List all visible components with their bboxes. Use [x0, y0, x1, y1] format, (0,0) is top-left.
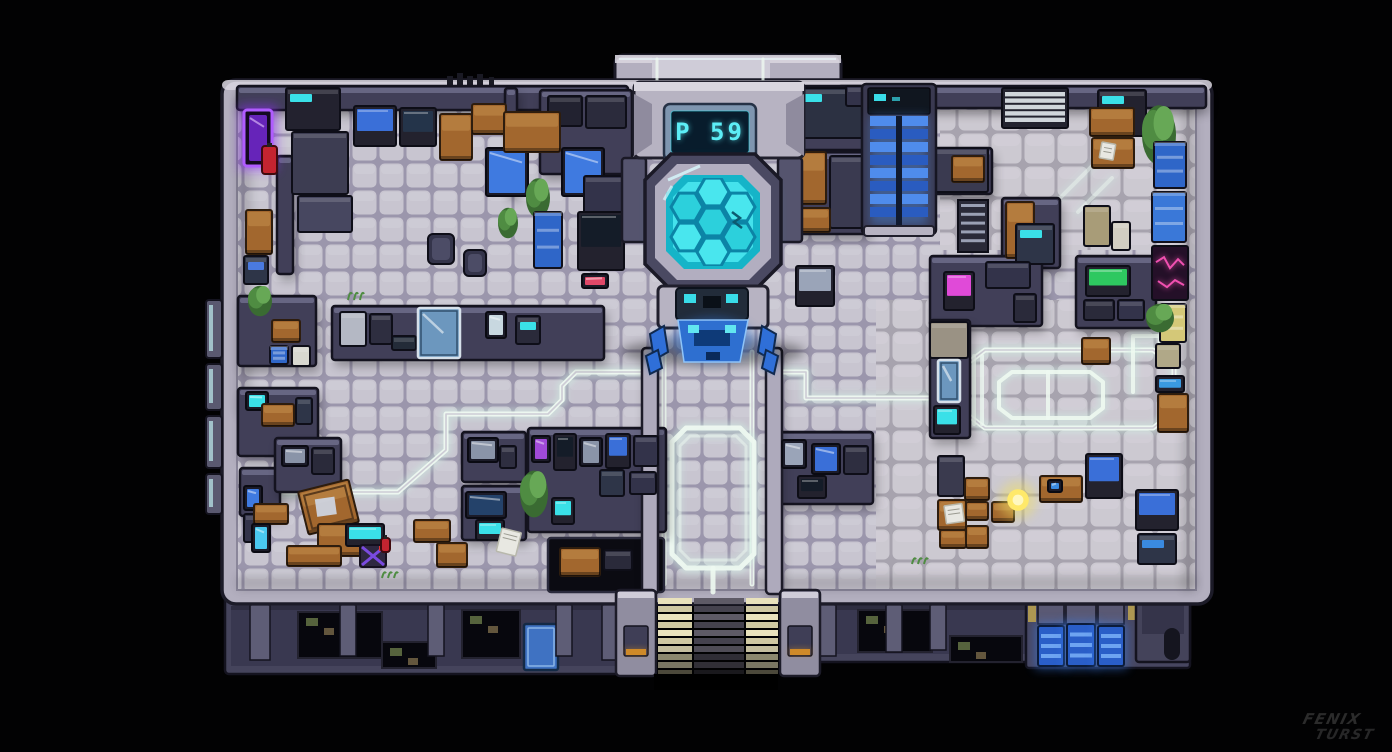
cabinet [1156, 344, 1180, 368]
cabinet [292, 132, 348, 194]
artist-signature: FENIX TURST [1297, 710, 1380, 743]
computer-terminal [1086, 454, 1122, 498]
display-screen [466, 492, 506, 518]
cabinet [938, 456, 964, 496]
computer-terminal [1136, 490, 1178, 530]
computer-terminal [606, 434, 630, 468]
wooden-desk [414, 520, 450, 542]
wooden-desk [287, 546, 341, 566]
storage-locker [534, 212, 562, 268]
wooden-desk [254, 504, 288, 524]
cabinet [600, 470, 624, 496]
cabinet [634, 436, 658, 466]
computer-terminal [552, 498, 574, 524]
chair [464, 250, 486, 276]
display-screen [486, 148, 528, 196]
glass-panel [938, 360, 960, 402]
cabinet [1118, 300, 1144, 320]
wooden-desk [560, 548, 600, 576]
potted-plant [248, 286, 272, 317]
wooden-desk [966, 526, 988, 548]
computer-terminal [346, 524, 384, 546]
computer-terminal [554, 434, 576, 470]
wooden-desk [1082, 338, 1110, 364]
wooden-cabinet [246, 210, 272, 254]
fire-extinguisher [381, 535, 390, 552]
computer-terminal [798, 476, 826, 498]
wooden-desk [952, 156, 984, 182]
cabinet [1084, 300, 1114, 320]
potted-plant [498, 208, 518, 239]
storage-locker [1154, 142, 1186, 188]
display-screen [282, 446, 308, 466]
cabinet [1014, 294, 1036, 322]
ladder [958, 200, 988, 252]
cabinet [370, 314, 392, 344]
paper-sheet [1099, 142, 1116, 160]
display-screen [582, 274, 608, 288]
cabinet [312, 448, 334, 474]
display-screen [1048, 480, 1062, 492]
wooden-desk [504, 112, 560, 152]
cabinet [1016, 224, 1054, 264]
display-screen [782, 440, 806, 468]
blue-staircase [862, 84, 936, 236]
wooden-desk [965, 478, 989, 500]
wooden-desk [1090, 108, 1134, 136]
room-wall-block [277, 156, 293, 274]
paper-sheet [944, 503, 964, 523]
storage-locker [1152, 192, 1186, 242]
storage-locker [270, 346, 288, 364]
computer-terminal [1156, 376, 1184, 392]
cabinet [500, 446, 516, 468]
display-screen [486, 312, 506, 338]
cabinet [1138, 534, 1176, 564]
wooden-cabinet [440, 114, 472, 160]
chair [428, 234, 454, 264]
wooden-desk [800, 208, 830, 232]
computer-terminal [796, 266, 834, 306]
cabinet [516, 316, 540, 344]
display-screen [532, 436, 550, 462]
signature-line-2: TURST [1313, 727, 1376, 743]
computer-terminal [400, 108, 436, 146]
wooden-desk [966, 502, 988, 520]
cabinet [844, 446, 868, 474]
display-screen [812, 444, 840, 474]
computer-terminal [934, 406, 960, 434]
game-viewport[interactable]: P 59 P 59 FENIX TURST [0, 0, 1392, 752]
display-screen [252, 524, 270, 552]
cabinet [630, 472, 656, 494]
computer-terminal [578, 212, 624, 270]
cabinet [298, 196, 352, 232]
cabinet [292, 346, 310, 366]
wooden-desk [262, 404, 294, 426]
cabinet [586, 96, 626, 128]
potted-plant [520, 471, 548, 518]
potted-plant [1146, 304, 1174, 333]
display-screen [468, 438, 498, 462]
computer-terminal [1086, 266, 1130, 296]
cabinet [930, 322, 968, 358]
reactor-display-text: P 59 [675, 118, 745, 146]
display-screen [580, 438, 602, 466]
cabinet [244, 256, 268, 284]
cabinet [392, 336, 416, 350]
cabinet [604, 550, 632, 570]
glow-lamp [999, 481, 1037, 519]
neon-sign [1152, 246, 1188, 300]
cabinet [286, 88, 340, 130]
cabinet [1112, 222, 1130, 250]
station-map-canvas: P 59 P 59 FENIX TURST [0, 0, 1392, 752]
computer-terminal [944, 272, 974, 310]
wooden-desk [1158, 394, 1188, 432]
wooden-desk [472, 104, 506, 134]
cabinet [340, 312, 366, 346]
cabinet [296, 398, 312, 424]
wooden-desk [940, 530, 966, 548]
glass-panel [418, 308, 460, 358]
cabinet [986, 262, 1030, 288]
computer-terminal [354, 106, 396, 146]
signature-line-1: FENIX [1301, 710, 1363, 728]
fire-extinguisher [262, 143, 277, 174]
vent-grate [1002, 88, 1068, 128]
wooden-desk [272, 320, 300, 342]
wooden-desk [437, 543, 467, 567]
cabinet [1084, 206, 1110, 246]
